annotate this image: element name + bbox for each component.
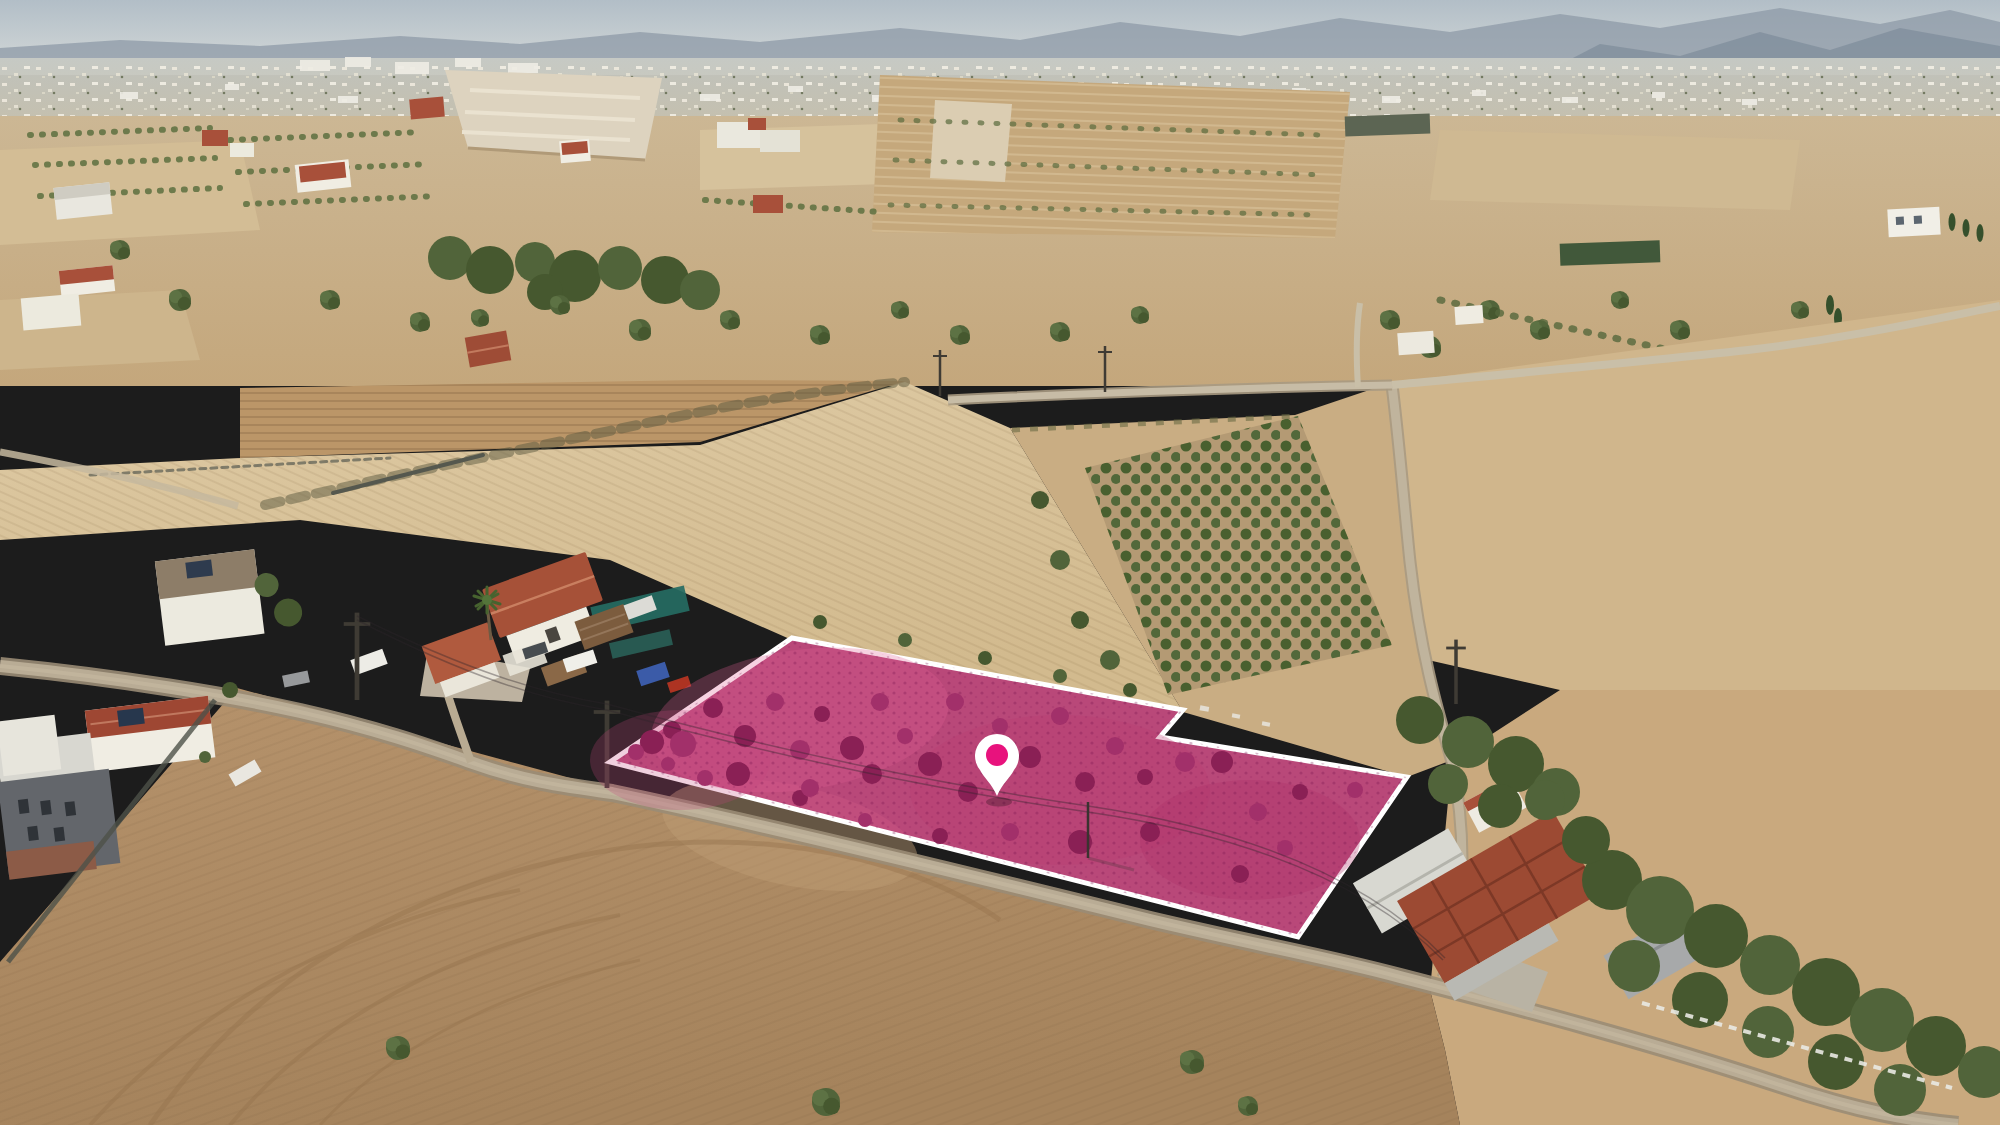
- house: [409, 97, 445, 120]
- aerial-photo-canvas: [0, 0, 2000, 1125]
- house: [1397, 331, 1434, 355]
- vineyard-net: [1560, 240, 1661, 265]
- white-outbuilding: [0, 715, 61, 777]
- house: [53, 182, 112, 220]
- house: [295, 159, 352, 192]
- blue-truck: [636, 662, 669, 686]
- house: [559, 139, 591, 164]
- house: [21, 294, 82, 331]
- terraced-hill: [872, 75, 1350, 238]
- road-stub: [1357, 303, 1360, 387]
- house: [753, 195, 783, 213]
- field-patch: [1430, 130, 1800, 210]
- field-patch: [0, 140, 260, 245]
- pin-shadow: [986, 798, 1012, 807]
- hilltop-house: [155, 544, 304, 645]
- house: [1454, 305, 1483, 325]
- aerial-photo: [0, 0, 2000, 1125]
- grey-car: [282, 670, 310, 687]
- quarry: [445, 70, 662, 160]
- greenhouse: [1345, 114, 1431, 137]
- villa: [1887, 207, 1940, 238]
- pin-dot: [986, 744, 1008, 766]
